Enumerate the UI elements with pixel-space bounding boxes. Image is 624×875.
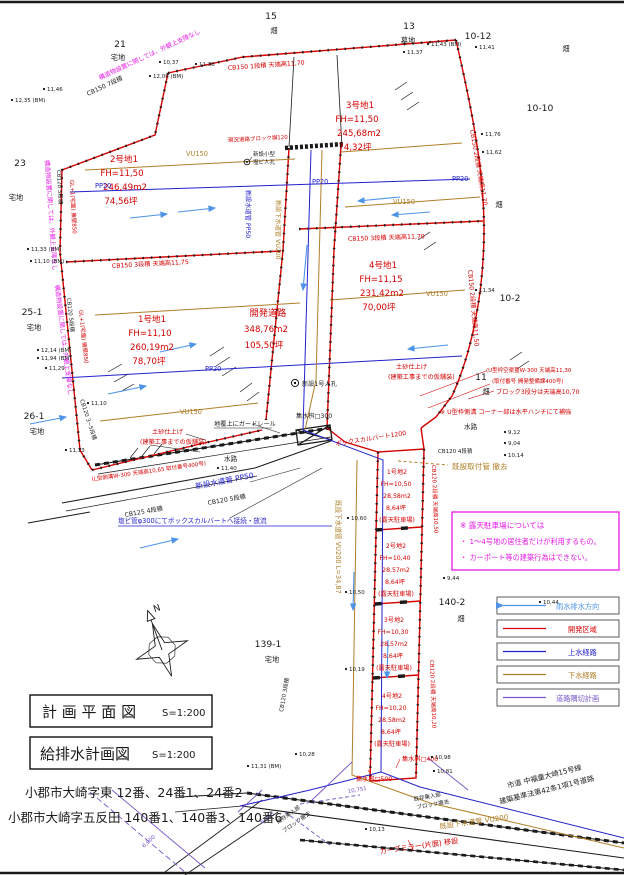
ann-cb150-3dan-b: CB150 3段積 天端高11,70 xyxy=(348,232,425,243)
legend-row-corner: 道路隅切計画 xyxy=(497,689,619,706)
parcel-labels: 21 宅地 15 畑 13 墓地 10-12 畑 10-10 畑 10-2 11… xyxy=(9,11,570,664)
lot-1-area: 260,19m2 xyxy=(130,343,174,353)
lot-1-fh: FH=11,10 xyxy=(128,329,171,339)
ann-cb120-4dan: CB120 4段積 xyxy=(438,447,473,455)
stall-2-tsubo: 8,64坪 xyxy=(385,578,405,586)
parcel-15: 15 xyxy=(265,11,277,22)
spot-elevation: 11,31 (BM) xyxy=(251,764,281,770)
spot-dot xyxy=(345,668,347,670)
ann-shusui500: 集水桝□500 xyxy=(356,775,392,783)
vu200-bottom-label: 既設下水道管 VU200 xyxy=(439,812,509,831)
spot-dot xyxy=(45,367,47,369)
address-line-1: 小郡市大崎字東 12番、24番1、24番2 xyxy=(25,785,243,800)
spot-dot xyxy=(433,770,435,772)
ann-suiro-2: 水路 xyxy=(224,454,238,463)
spot-dot xyxy=(475,46,477,48)
parcel-25-1-use: 宅地 xyxy=(27,323,41,332)
parcel-140-2: 140-2 xyxy=(439,597,466,608)
stall-3-name: 3号地2 xyxy=(384,616,404,624)
stall-1-block: 1号地2 FH=10,50 28,58m2 8,64坪 (露天駐車場) xyxy=(379,468,415,524)
spot-elevation: 11,40 xyxy=(221,466,237,472)
stall-2-name: 2号地2 xyxy=(386,542,406,550)
spot-dot xyxy=(27,248,29,250)
ann-dosha-1b: (建築工事までの仮舗装) xyxy=(140,438,207,446)
stall-3-fh: FH=10,30 xyxy=(377,629,408,636)
spot-dot xyxy=(504,442,506,444)
lot-3-block: 3号地1 FH=11,50 245,68m2 74,32坪 xyxy=(335,99,381,153)
spot-elevation: 10,14 xyxy=(508,453,524,459)
spot-dot xyxy=(37,357,39,359)
spot-dot xyxy=(195,63,197,65)
manhole-small-dot xyxy=(246,161,248,163)
stall-4-area: 28,58m2 xyxy=(378,717,406,724)
spot-elevation: 11,33 (BM) xyxy=(31,247,61,253)
leader-lines xyxy=(150,157,322,518)
manhole-1-dot xyxy=(294,382,296,384)
parcel-10-10: 10-10 xyxy=(527,103,554,114)
ann-utype-2: (取付番号 開発整備課400号) xyxy=(492,377,564,385)
spot-dot xyxy=(159,61,161,63)
spot-elevation: 11,29 xyxy=(49,366,65,372)
parcel-21-use: 宅地 xyxy=(111,53,125,62)
address-line-2: 小郡市大崎字五反田 140番1、140番3、140番6 xyxy=(8,810,282,825)
parcel-23-use: 宅地 xyxy=(9,193,23,202)
stall-4-use: (露天駐車場) xyxy=(374,740,410,748)
spot-elevation: 9,04 xyxy=(508,441,521,447)
spot-elevation: 10,60 xyxy=(351,516,367,522)
vu150-label-3: VU150 xyxy=(426,290,448,298)
spot-dot xyxy=(87,402,89,404)
spot-elevation: 11,13 xyxy=(69,448,85,454)
spot-elevation: 10,81 xyxy=(437,769,453,775)
title-drainage: 給排水計画図 xyxy=(40,745,130,763)
spot-elevation: 9,12 xyxy=(508,430,520,436)
parcel-13-use: 墓地 xyxy=(401,36,415,45)
spot-elevation: 10,37 xyxy=(163,60,179,66)
parcel-26-1: 26-1 xyxy=(24,411,45,422)
ann-cb150-2dan-a: CB150 2段積 天端高11,70 xyxy=(468,129,489,206)
parcel-139-1-use: 宅地 xyxy=(265,655,279,664)
ann-cb120-5dan-a: CB120 5段積 xyxy=(55,170,65,205)
legend-area-label: 開発区域 xyxy=(568,625,597,634)
legend-row-sewer: 下水経路 xyxy=(497,666,619,683)
note-line-3: ・ カーポート等の建築行為はできない。 xyxy=(460,553,592,562)
pipe-labels: PP20 PP20 PP20 PP20 VU150 VU150 VU150 VU… xyxy=(95,150,509,831)
spot-elevation: 10,19 xyxy=(349,667,365,673)
spot-dot xyxy=(345,591,347,593)
spot-dot xyxy=(37,349,39,351)
lot-4-fh: FH=11,15 xyxy=(359,275,402,285)
spot-dot xyxy=(247,765,249,767)
vu150-label-1: VU150 xyxy=(186,150,208,158)
lot-4-name: 4号地1 xyxy=(369,259,397,271)
stall-1-name: 1号地2 xyxy=(387,468,407,476)
stall-3-tsubo: 8,64坪 xyxy=(383,652,403,660)
ann-shusui300: 集水桝□300 xyxy=(296,412,332,420)
lot-3-fh: FH=11,50 xyxy=(335,115,378,125)
road-water-label: 新設水道管 PP50 xyxy=(244,190,252,238)
lot-4-tsubo: 70,00坪 xyxy=(362,302,396,313)
spot-elevation: 12,14 (BM) xyxy=(41,348,71,354)
site-plan-sheet: N 1号地1 FH=11,10 260,19m2 78,70坪 2号地1 FH=… xyxy=(0,0,624,875)
stall-4-fh: FH=10,20 xyxy=(375,705,406,712)
sewer-lines xyxy=(85,143,624,848)
lot-2-block: 2号地1 FH=11,50 246,49m2 74,56坪 xyxy=(100,153,147,207)
pp20-label-1: PP20 xyxy=(95,182,111,190)
stall-1-tsubo: 8,64坪 xyxy=(386,504,406,512)
road-sewer-label: 新設下水道管 VU200 xyxy=(274,200,282,260)
spot-dot xyxy=(65,449,67,451)
spot-elevation: 11,37 xyxy=(407,50,423,56)
spot-dot xyxy=(217,467,219,469)
ann-cb120-3dan: CB120 3段積 xyxy=(277,677,291,713)
legend: 雨水排水方向 開発区域 上水経路 下水経路 道路隅切計画 xyxy=(497,597,619,706)
ann-gl-left1: GL+1(宅盤) 擁壁850 xyxy=(68,180,79,235)
spot-elevation: 11,43 (BM) xyxy=(431,42,461,48)
spot-dot xyxy=(481,133,483,135)
parcel-10-12: 10-12 xyxy=(465,31,492,42)
legend-sewer-label: 下水経路 xyxy=(568,671,597,680)
title-plan: 計 画 平 面 図 xyxy=(42,703,136,721)
parcel-23: 23 xyxy=(14,158,26,169)
stall-2-area: 28,57m2 xyxy=(382,567,410,574)
ann-box-culvert: ボックスカルバート1200 xyxy=(335,429,407,448)
note-line-1: ※ 露天駐車場については xyxy=(460,520,545,530)
road-area: 348,76m2 xyxy=(244,325,288,335)
spot-elevation: 11,62 xyxy=(486,150,502,156)
parcel-26-1-use: 宅地 xyxy=(30,427,44,436)
ann-block3dan: ブロック3段分は天端高10,70 xyxy=(496,388,580,396)
stall-labels: 1号地2 FH=10,50 28,58m2 8,64坪 (露天駐車場) 2号地2… xyxy=(374,468,415,748)
spot-dot xyxy=(504,431,506,433)
spot-elevation: 10,98 xyxy=(435,755,451,761)
pp20-label-4: PP20 xyxy=(205,365,221,373)
water-supply-lines xyxy=(62,150,624,838)
spot-elevation: 11,34 xyxy=(479,288,495,294)
pp20-label-3: PP20 xyxy=(452,175,468,183)
spot-dot xyxy=(365,828,367,830)
ann-dosha-1a: 土砂仕上げ xyxy=(152,428,184,436)
ann-cb120-2dan-a: CB120 2段積 天端高10,50 xyxy=(430,465,440,534)
parcel-139-1: 139-1 xyxy=(255,639,282,650)
spot-elevation: 11,38 xyxy=(199,62,215,68)
ann-cb120-5dan-c: CB120 5段積 xyxy=(207,492,246,507)
ann-utype-1: (U型枠空渠蓋W-300 天端高11,30 xyxy=(486,366,572,374)
vu150-label-4: VU150 xyxy=(180,408,202,416)
parcel-25-1: 25-1 xyxy=(22,307,43,318)
note-line-2: ・ 1〜4号地の居住者だけが利用するもの。 xyxy=(460,537,601,546)
title-plan-scale: S=1:200 xyxy=(162,708,206,719)
lot-1-name: 1号地1 xyxy=(138,313,166,325)
legend-row-area: 開発区域 xyxy=(497,620,619,637)
vu150-label-2: VU150 xyxy=(393,198,415,206)
spot-dot xyxy=(504,454,506,456)
lot-1-block: 1号地1 FH=11,10 260,19m2 78,70坪 xyxy=(128,313,174,367)
spot-dot xyxy=(427,43,429,45)
ann-gl-left2: GL+1(宅盤) 擁壁850 xyxy=(77,309,91,364)
note-box: ※ 露天駐車場については ・ 1〜4号地の居住者だけが利用するもの。 ・ カーポ… xyxy=(452,512,619,570)
ann-guardrail: 地覆上にガードレール xyxy=(214,420,276,428)
stall-3-area: 28,57m2 xyxy=(380,641,408,648)
compass-rose: N xyxy=(121,598,197,686)
spot-dot xyxy=(149,75,151,77)
stall-4-name: 4号地2 xyxy=(382,692,402,700)
spot-dot xyxy=(482,151,484,153)
parcel-10-10-use: 畑 xyxy=(495,200,502,209)
lot-4-area: 231,42m2 xyxy=(360,289,404,299)
road-tsubo: 105,50坪 xyxy=(245,340,284,351)
stall-4-block: 4号地2 FH=10,20 28,58m2 8,64坪 (露天駐車場) xyxy=(374,692,410,748)
lot-3-area: 245,68m2 xyxy=(337,129,381,139)
ann-cb150-2dan-b: CB150 2段積 天端高11,50 xyxy=(466,269,481,346)
ann-jinko-s1: 新設小型 xyxy=(253,150,276,158)
stall-1-fh: FH=10,50 xyxy=(380,481,411,488)
vu200-vertical-label: 既設下水道管 VU200 L=34,87 xyxy=(334,500,343,594)
spot-dot xyxy=(403,51,405,53)
site-plan-canvas: N 1号地1 FH=11,10 260,19m2 78,70坪 2号地1 FH=… xyxy=(0,0,624,875)
spot-dot xyxy=(295,753,297,755)
spot-elevation: 11,10 (BM) xyxy=(34,259,64,265)
ann-genkyo-block: 現況道路ブロック塀120 xyxy=(228,133,289,144)
ann-dosha-2a: 土砂仕上げ xyxy=(396,363,428,371)
spot-dot xyxy=(347,517,349,519)
stall-3-use: (露天駐車場) xyxy=(376,664,412,672)
spot-elevation: 12,35 (BM) xyxy=(15,98,45,104)
parcel-11-use: 畑 xyxy=(482,387,489,396)
stall-1-area: 28,58m2 xyxy=(383,493,411,500)
parcel-10-12-use: 畑 xyxy=(562,44,569,53)
spot-dot xyxy=(30,260,32,262)
spot-dot xyxy=(431,756,433,758)
ann-shusui400: 集水桝□400 xyxy=(402,755,438,763)
ann-jinko-s2: 塩ビ人孔 xyxy=(253,158,276,166)
ann-dosha-2b: (建築工事までの仮舗装) xyxy=(388,373,455,381)
stall-4-tsubo: 8,64坪 xyxy=(381,728,401,736)
lot-2-fh: FH=11,50 xyxy=(100,169,143,179)
parcel-21: 21 xyxy=(114,39,126,50)
stall-2-block: 2号地2 FH=10,40 28,57m2 8,64坪 (露天駐車場) xyxy=(378,542,414,598)
legend-row-water: 上水経路 xyxy=(497,643,619,660)
legend-corner-label: 道路隅切計画 xyxy=(556,694,599,703)
compass-n-label: N xyxy=(152,602,162,615)
spot-elevation: 9,44 xyxy=(447,576,460,582)
parcel-10-2: 10-2 xyxy=(500,293,521,304)
spot-elevation: 12,06 (BM) xyxy=(153,74,183,80)
lot-2-name: 2号地1 xyxy=(110,153,138,165)
lot-3-tsubo: 74,32坪 xyxy=(338,142,372,153)
legend-rain-label: 雨水排水方向 xyxy=(556,602,599,611)
stall-2-fh: FH=10,40 xyxy=(379,555,410,562)
ann-jinko1: 新設1号人孔 xyxy=(302,380,337,388)
road-block: 開発道路 348,76m2 105,50坪 xyxy=(244,307,288,351)
spot-dot xyxy=(475,289,477,291)
stall-1-use: (露天駐車場) xyxy=(379,516,415,524)
ann-cb120-2dan-b: CB120 2段積 天端高10,20 xyxy=(428,660,438,729)
parcel-140-2-use: 畑 xyxy=(457,614,464,623)
spot-dot xyxy=(43,88,45,90)
spot-elevation: 11,76 xyxy=(485,132,501,138)
spot-elevation: 11,94 (BM) xyxy=(41,356,71,362)
ann-kisetsu-toritsuke: 既設取付管 撤去 xyxy=(452,461,508,471)
lot-3-name: 3号地1 xyxy=(346,99,374,111)
spot-elevation: 10,50 xyxy=(349,590,365,596)
spot-elevation: 10,13 xyxy=(369,827,385,833)
lot-4-block: 4号地1 FH=11,15 231,42m2 70,00坪 xyxy=(359,259,404,313)
spot-dot xyxy=(443,577,445,579)
road-name: 開発道路 xyxy=(250,307,287,319)
spot-dot xyxy=(11,99,13,101)
spot-dot xyxy=(539,601,541,603)
lot-1-tsubo: 78,70坪 xyxy=(132,356,166,367)
ann-suiro-1: 水路 xyxy=(464,422,478,431)
parcel-15-use: 畑 xyxy=(270,26,277,35)
pp20-label-2: PP20 xyxy=(312,178,328,186)
ann-uhanchi: ※ U型枠側溝 コーナー部は水平ハンチにて補強 xyxy=(440,408,571,416)
spot-elevation: 11,46 xyxy=(47,87,63,93)
spot-elevation: 10,28 xyxy=(299,752,315,758)
ann-dim-2: 10,751 xyxy=(347,786,367,795)
parcel-13: 13 xyxy=(403,21,415,32)
ann-cb150-3dan-a: CB150 3段積 天端高11,75 xyxy=(112,258,189,270)
title-drainage-scale: S=1:200 xyxy=(152,750,196,761)
legend-water-label: 上水経路 xyxy=(568,648,597,657)
stall-2-use: (露天駐車場) xyxy=(378,590,414,598)
ann-enbi: 塩ビ管φ300にてボックスカルバートへ接続・放流 xyxy=(118,516,267,525)
lot-2-tsubo: 74,56坪 xyxy=(104,196,138,207)
spot-elevation: 11,10 xyxy=(91,401,107,407)
spot-elevation: 11,41 xyxy=(479,45,495,51)
